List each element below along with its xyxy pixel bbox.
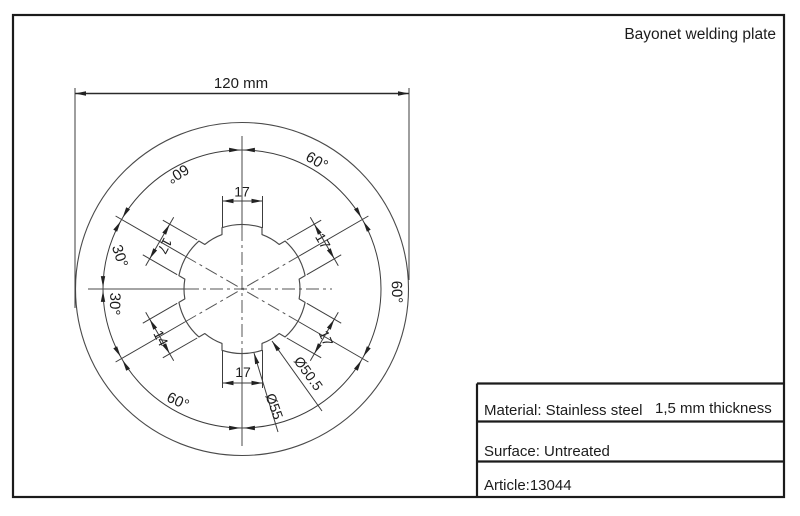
angle-arc-arrow xyxy=(113,346,120,357)
angle-arc-arrow xyxy=(363,346,370,357)
tab-dim-arrow xyxy=(327,248,334,259)
angle-label-left-upper: 30° xyxy=(108,243,131,270)
tab-dim-arrow xyxy=(150,248,157,259)
bottom-tab-dim-label: 17 xyxy=(235,364,251,380)
diameter-label-outer: Ø55 xyxy=(262,391,286,422)
technical-drawing-canvas: Bayonet welding plate 120 mm 17 17 17 17… xyxy=(0,0,800,516)
article-value: Article:13044 xyxy=(484,477,572,494)
tab-dim-ext-line xyxy=(163,220,197,240)
radial-line-sw xyxy=(116,322,185,362)
overall-dim-arrow xyxy=(398,91,409,95)
tab-dim-ext-line xyxy=(143,303,177,323)
angle-arc-arrow xyxy=(123,360,130,371)
diameter-label-inner: Ø50.5 xyxy=(291,353,326,393)
angle-arc-arrow xyxy=(113,221,120,232)
leader-arrow-d55 xyxy=(254,353,259,364)
angle-label-right: 60° xyxy=(388,280,406,303)
overall-width-label: 120 mm xyxy=(214,75,268,92)
angle-arc-arrow xyxy=(229,148,240,152)
tab-dim-arrow xyxy=(162,343,169,354)
angle-label-top-left: 60° xyxy=(164,160,192,186)
drawing-sheet: Bayonet welding plate 120 mm 17 17 17 17… xyxy=(0,0,800,516)
top-dim-arrow xyxy=(223,199,234,203)
bottom-dim-arrow xyxy=(223,381,234,385)
drawing-title: Bayonet welding plate xyxy=(624,26,776,43)
tab-dim-arrow xyxy=(314,343,321,354)
tab-dim-ext-line xyxy=(143,255,177,275)
tab-dim-arrow xyxy=(162,224,169,235)
angle-arc-arrow xyxy=(101,291,105,302)
title-block: Material: Stainless steel 1,5 mm thickne… xyxy=(477,384,784,498)
overall-dim-arrow xyxy=(75,91,86,95)
angle-label-bottom-left: 60° xyxy=(164,389,192,414)
angle-label-top-right: 60° xyxy=(303,148,331,174)
tab-dim-ext-line xyxy=(307,255,341,275)
angle-arc-arrow xyxy=(354,207,361,218)
angle-label-left-lower: 30° xyxy=(106,292,124,315)
angle-arc-arrow xyxy=(101,276,105,287)
angle-arc-arrow xyxy=(229,426,240,430)
angle-arc-arrow xyxy=(123,207,130,218)
material-value: Material: Stainless steel xyxy=(484,402,642,419)
thickness-value: 1,5 mm thickness xyxy=(655,400,772,417)
tab-dim-arrow xyxy=(314,224,321,235)
leader-arrow-d505 xyxy=(272,341,280,351)
tab-dim-arrow xyxy=(327,319,334,330)
angle-arc-arrow xyxy=(354,360,361,371)
angle-arc-arrow xyxy=(363,221,370,232)
tab-dim-ext-line xyxy=(307,303,341,323)
surface-value: Surface: Untreated xyxy=(484,443,610,460)
bottom-dim-arrow xyxy=(252,381,263,385)
angle-arc-arrow xyxy=(244,426,255,430)
angle-arc-arrow xyxy=(244,148,255,152)
tab-dim-arrow xyxy=(150,319,157,330)
top-dim-arrow xyxy=(252,199,263,203)
top-tab-dim-label: 17 xyxy=(234,184,250,200)
radial-line-ne xyxy=(299,216,368,256)
